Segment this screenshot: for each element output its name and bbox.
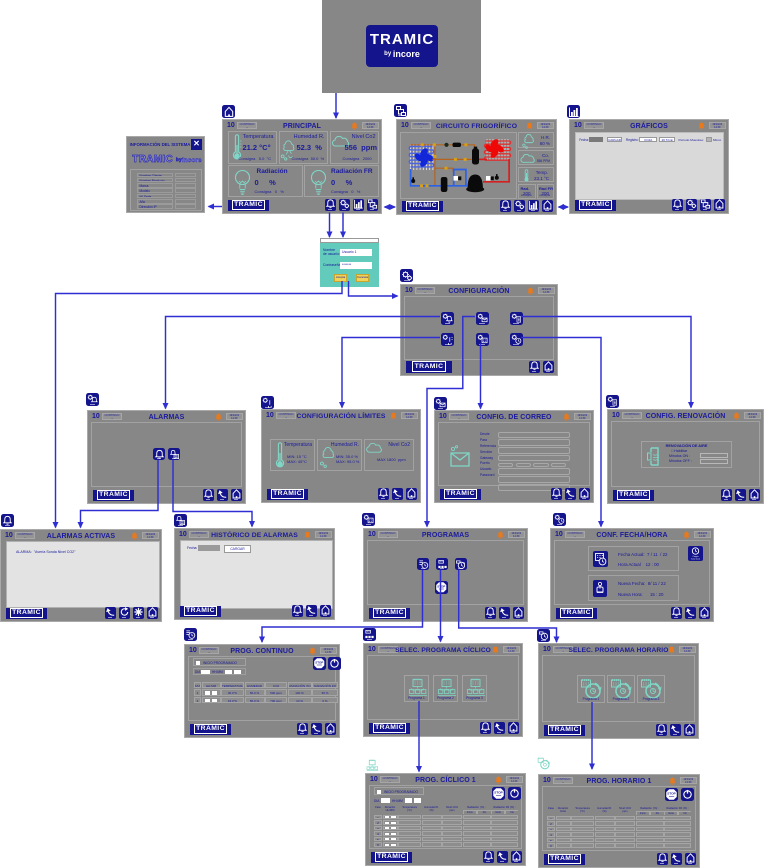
svg-text:STOP: STOP	[494, 790, 502, 794]
svg-text:STOP: STOP	[437, 584, 445, 588]
svg-text:STOP: STOP	[315, 660, 323, 664]
svg-text:STOP: STOP	[667, 791, 675, 795]
svg-text:hora local: hora local	[691, 559, 700, 561]
